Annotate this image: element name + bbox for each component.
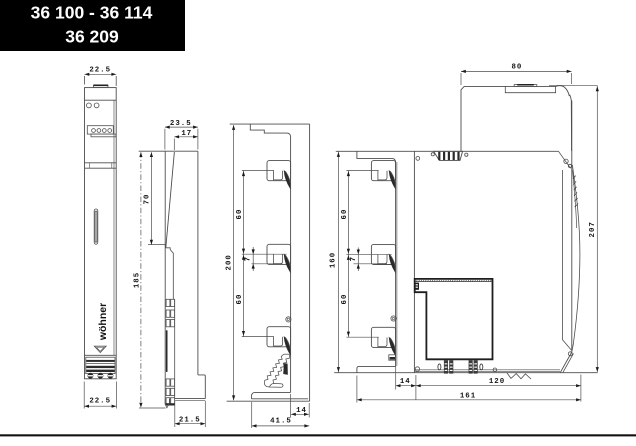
- svg-text:36 100 - 36 114: 36 100 - 36 114: [31, 3, 153, 23]
- svg-text:161: 161: [460, 392, 476, 400]
- svg-text:36 209: 36 209: [65, 27, 119, 47]
- svg-text:41.5: 41.5: [270, 417, 292, 425]
- svg-text:207: 207: [589, 221, 597, 237]
- svg-text:80: 80: [511, 63, 522, 71]
- svg-text:14: 14: [296, 407, 307, 415]
- svg-text:60: 60: [341, 294, 349, 305]
- svg-text:200: 200: [226, 254, 234, 270]
- svg-text:22.5: 22.5: [89, 397, 111, 405]
- svg-text:70: 70: [144, 194, 152, 205]
- svg-text:160: 160: [330, 252, 338, 268]
- svg-text:wöhner: wöhner: [97, 303, 109, 341]
- svg-text:60: 60: [341, 209, 349, 220]
- svg-text:60: 60: [236, 209, 244, 220]
- svg-text:60: 60: [236, 294, 244, 305]
- svg-text:14: 14: [400, 378, 411, 386]
- svg-text:120: 120: [489, 378, 505, 386]
- svg-text:22.5: 22.5: [89, 67, 111, 75]
- svg-text:21.5: 21.5: [179, 416, 201, 424]
- svg-text:7: 7: [350, 256, 358, 261]
- svg-text:7: 7: [245, 256, 253, 261]
- svg-text:185: 185: [133, 272, 141, 288]
